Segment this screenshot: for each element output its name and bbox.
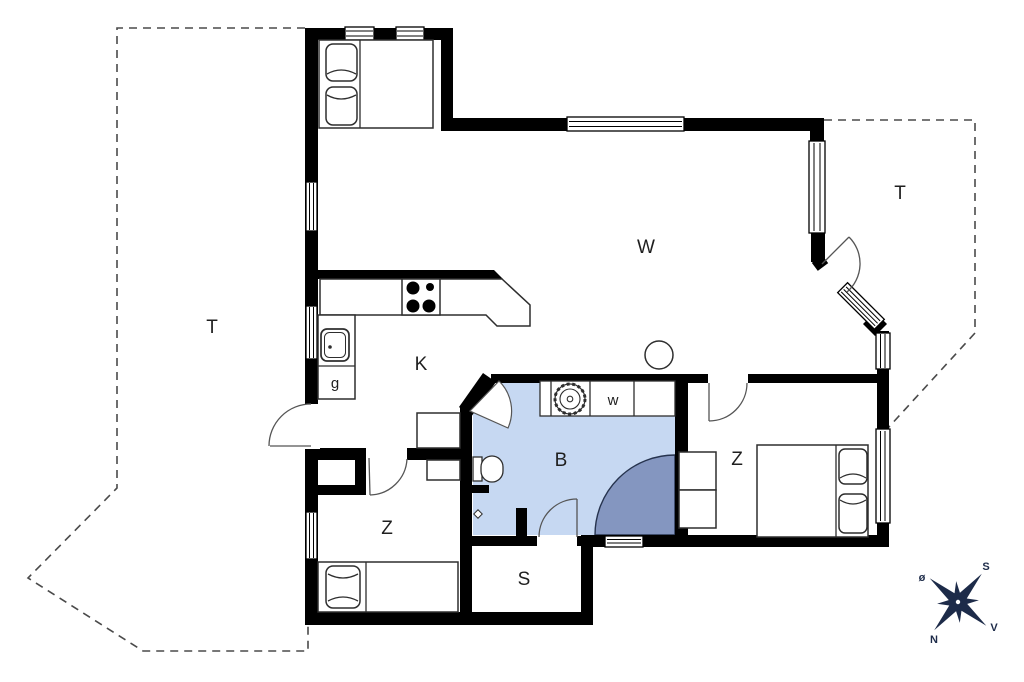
bedroom-right-opening (708, 373, 748, 384)
window-west-bedroom (306, 512, 317, 559)
floor-plan: T T W K B Z Z S g w S ø V N (0, 0, 1024, 682)
bedroom-left-door (369, 458, 407, 495)
terrace-door-ne (822, 237, 860, 292)
stove-burner (426, 283, 434, 291)
label-bathroom: B (555, 450, 568, 471)
label-shed: S (518, 569, 531, 590)
sink-drain (328, 345, 332, 349)
wall-toilet-stub (472, 485, 489, 493)
label-washing-machine: w (607, 392, 619, 409)
window-alcove-1 (345, 27, 374, 40)
label-terrace-right: T (894, 183, 906, 204)
wall-alcove-east (441, 28, 453, 119)
dresser (679, 490, 716, 528)
terrace-left-outline (28, 28, 308, 651)
label-bedroom-left: Z (381, 518, 393, 539)
stove-burner (423, 300, 436, 313)
compass-label-east: ø (919, 572, 926, 584)
compass-label-south: S (982, 561, 989, 573)
stove-burner (407, 300, 420, 313)
wall-south-west (305, 612, 593, 625)
kitchen-sink (321, 329, 349, 361)
wall-shed-east (581, 535, 593, 625)
wall-bath-door-stub (516, 508, 527, 537)
compass-rose (930, 574, 987, 631)
window-north-living (567, 117, 684, 131)
stove-burner (407, 282, 420, 295)
toilet (473, 456, 503, 482)
wall-alcove-north (305, 28, 453, 40)
label-wardrobe: g (331, 375, 339, 392)
bed-bedroom-right (757, 445, 868, 537)
entrance-opening (303, 404, 320, 449)
window-south-bath (605, 536, 643, 547)
wall-bath-north-b (747, 374, 877, 383)
wall-closet-stub-h (318, 485, 366, 495)
window-alcove-2 (396, 27, 424, 40)
dresser (679, 452, 716, 490)
wall-kitchen (318, 270, 503, 279)
window-east-diagonal (838, 283, 885, 330)
wall-bath-west (460, 406, 472, 625)
bed-alcove (319, 40, 433, 128)
label-kitchen: K (415, 354, 428, 375)
bedroom-right-door (709, 383, 747, 421)
round-basin (555, 384, 585, 414)
window-east-mid (876, 333, 890, 369)
compass-label-north: N (930, 634, 938, 646)
label-bedroom-right: Z (731, 449, 743, 470)
round-table (645, 341, 673, 369)
wall-shed-north-a (470, 536, 537, 546)
wall-bedroom-left-b (407, 448, 462, 460)
floor-plan-canvas: T T W K B Z Z S g w S ø V N (0, 0, 1024, 682)
label-terrace-left: T (206, 317, 218, 338)
bed-bedroom-left (318, 562, 458, 612)
compass-label-west: V (990, 622, 998, 634)
window-west-kitchen (306, 306, 317, 359)
window-west-living (306, 182, 317, 231)
hall-cabinet-small (427, 460, 460, 480)
compass-hub-center (956, 600, 960, 604)
window-east-bedroom (876, 429, 890, 523)
hall-cabinet (417, 413, 460, 448)
window-east-upper (809, 141, 825, 233)
label-living-room: W (637, 237, 655, 258)
